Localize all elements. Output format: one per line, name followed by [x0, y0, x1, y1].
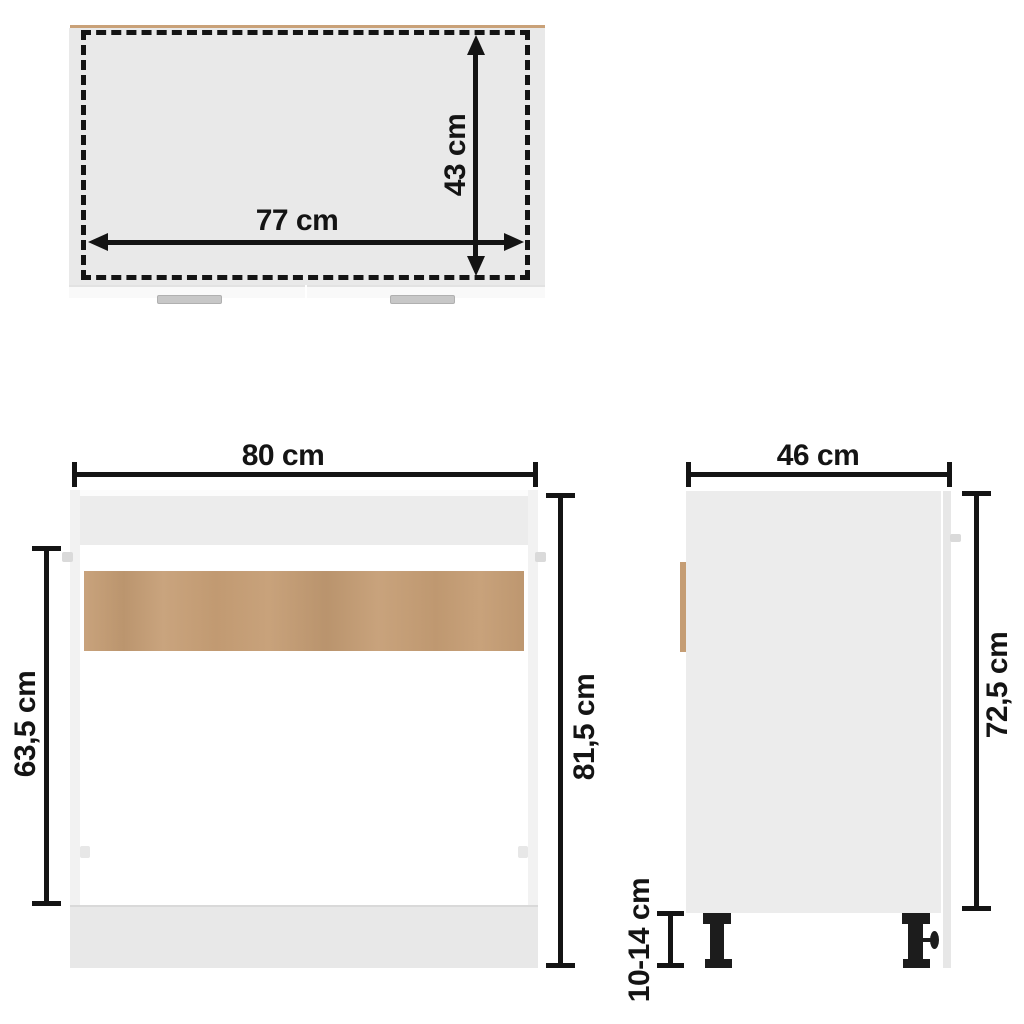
hinge-plate-top-right: [535, 552, 546, 562]
front-view-opening-gap: [80, 545, 528, 571]
top-view-handle-right: [390, 295, 455, 304]
front-view-plinth: [70, 905, 538, 968]
dimension-line: [686, 472, 952, 477]
dimension-end-cap: [947, 462, 952, 487]
dimension-end-cap: [72, 462, 77, 487]
hinge-pin: [950, 534, 961, 542]
dimension-end-cap: [962, 491, 991, 496]
front-view-back-panel: [84, 571, 524, 651]
leg-stem: [710, 924, 724, 959]
dimension-label: 77 cm: [256, 206, 339, 236]
dimension-arrow-line: [104, 240, 508, 245]
dimension-end-cap: [546, 493, 575, 498]
cabinet-dimension-diagram: 77 cm 43 cm 80 cm: [0, 0, 1024, 1024]
top-view-handle-left: [157, 295, 222, 304]
dimension-end-cap: [657, 963, 684, 968]
dimension-label: 72,5 cm: [983, 632, 1013, 739]
hinge-plate-bottom-right: [518, 846, 528, 858]
leg-top-cap: [902, 913, 930, 924]
arrow-right-icon: [504, 233, 524, 251]
arrow-up-icon: [467, 35, 485, 55]
leg-adjuster-knob: [930, 931, 939, 949]
dimension-label: 43 cm: [441, 114, 471, 197]
hinge-plate-top-left: [62, 552, 73, 562]
dimension-label: 63,5 cm: [11, 671, 41, 778]
dimension-line: [558, 495, 563, 966]
leg-top-cap: [703, 913, 731, 924]
front-view-opening: [80, 651, 528, 907]
dimension-end-cap: [32, 901, 61, 906]
dimension-label: 10-14 cm: [625, 878, 655, 1002]
dimension-end-cap: [686, 462, 691, 487]
dimension-end-cap: [546, 963, 575, 968]
hinge-plate-bottom-left: [80, 846, 90, 858]
dimension-label: 46 cm: [777, 441, 860, 471]
arrow-down-icon: [467, 256, 485, 276]
dimension-end-cap: [657, 911, 684, 916]
dimension-end-cap: [32, 546, 61, 551]
side-view-door-edge: [943, 491, 951, 968]
dimension-arrow-line: [473, 52, 478, 259]
dimension-line: [974, 493, 979, 911]
dimension-label: 80 cm: [242, 441, 325, 471]
leg-foot: [903, 959, 930, 968]
dimension-end-cap: [962, 906, 991, 911]
dimension-end-cap: [533, 462, 538, 487]
dimension-line: [72, 472, 538, 477]
leg-foot: [705, 959, 732, 968]
dimension-line: [668, 913, 673, 968]
side-view-side-panel: [686, 491, 941, 913]
front-view-top-rail: [80, 496, 528, 545]
arrow-left-icon: [88, 233, 108, 251]
dimension-line: [44, 548, 49, 904]
dimension-label: 81,5 cm: [570, 674, 600, 781]
